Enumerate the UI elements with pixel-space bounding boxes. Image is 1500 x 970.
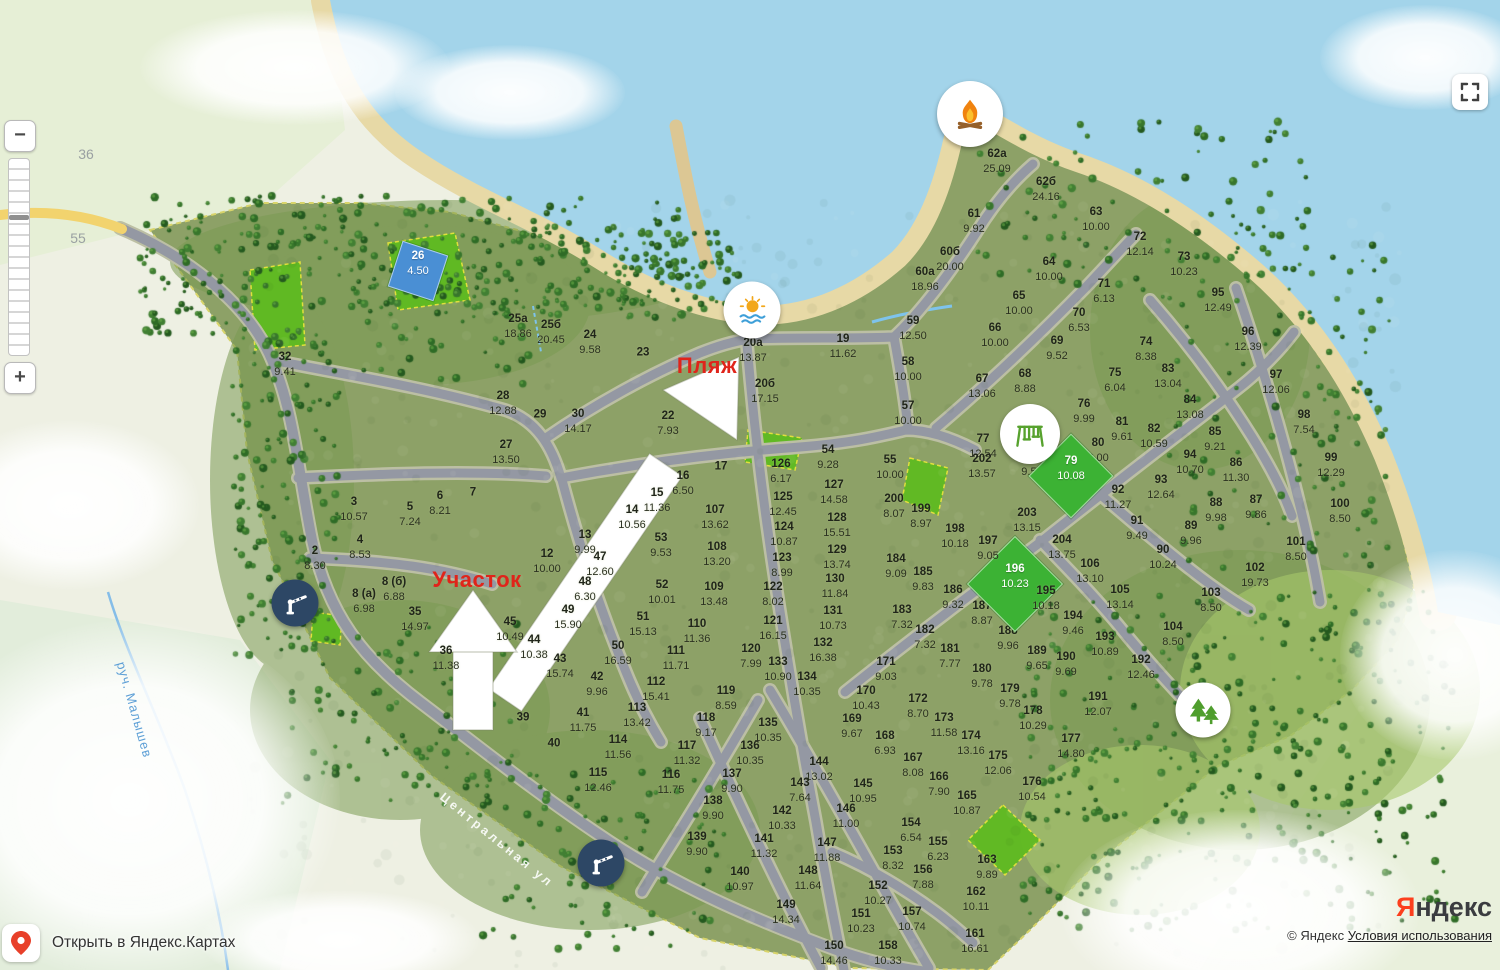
plot-label: 899.96 <box>1180 519 1201 548</box>
plot-label: 9612.39 <box>1234 325 1262 354</box>
plot-label: 1189.17 <box>695 711 716 740</box>
plot-label: 9912.29 <box>1317 451 1345 480</box>
plot-label: 2812.88 <box>489 389 517 418</box>
playground-marker[interactable] <box>1000 404 1060 464</box>
plot-label: 5115.13 <box>629 610 657 639</box>
plot-label: 3611.38 <box>433 644 460 673</box>
plot-label: 16116.61 <box>961 927 989 956</box>
open-in-yandex-maps-label[interactable]: Открыть в Яндекс.Картах <box>52 934 235 952</box>
plot-label: 11711.32 <box>674 739 701 768</box>
plot-label: 1379.90 <box>721 767 742 796</box>
plot-label: 10913.48 <box>700 580 728 609</box>
plot-label: 10513.14 <box>1106 583 1134 612</box>
plot-label: 6713.06 <box>968 372 996 401</box>
plot-label: 756.04 <box>1104 366 1125 395</box>
plot-label: 7310.23 <box>1170 250 1198 279</box>
plot-label: 12913.74 <box>823 543 851 572</box>
plot-label: 12410.87 <box>770 520 798 549</box>
plot-label: 5912.50 <box>899 314 927 343</box>
plot-label: 13410.35 <box>793 670 821 699</box>
plot-label: 619.92 <box>963 207 984 236</box>
campfire-marker[interactable] <box>937 81 1003 147</box>
plot-label: 1686.93 <box>874 729 895 758</box>
plot-label: 1538.32 <box>882 844 903 873</box>
plot-label: 13610.35 <box>736 739 764 768</box>
plot-label: 29 <box>534 407 547 422</box>
plot-label: 20а13.87 <box>739 336 767 365</box>
beach-icon <box>735 293 769 327</box>
copyright: © Яндекс <box>1287 928 1344 943</box>
plot-label: 4111.75 <box>570 706 597 735</box>
plot-label: 9211.27 <box>1105 483 1132 512</box>
plot-label: 919.49 <box>1126 514 1147 543</box>
plot-label: 1008.50 <box>1329 497 1350 526</box>
plot-label: 1667.90 <box>928 770 949 799</box>
plot-label: 8313.04 <box>1154 362 1182 391</box>
highlighted-plot[interactable] <box>967 536 1063 632</box>
plot-label: 1238.99 <box>771 551 792 580</box>
plot-label: 15110.23 <box>847 907 875 936</box>
plot-label: 1859.83 <box>912 565 933 594</box>
plot-label: 249.58 <box>579 328 600 357</box>
plot-label: 7 <box>470 485 476 500</box>
plot-label: 1048.50 <box>1162 620 1183 649</box>
plot-label: 429.96 <box>586 670 607 699</box>
plot-label: 5710.00 <box>894 399 922 428</box>
plot-label: 7712.54 <box>969 432 997 461</box>
plot-label: 15810.33 <box>874 939 902 968</box>
yandex-maps-pin-icon[interactable] <box>2 924 40 962</box>
plot-label: 10613.10 <box>1076 557 1104 586</box>
road-number: 55 <box>70 230 86 246</box>
plot-label: 68.21 <box>429 489 450 518</box>
plot-label: 20413.75 <box>1048 533 1076 562</box>
plot-label: 1210.00 <box>533 547 561 576</box>
plot-label: 17610.54 <box>1018 775 1046 804</box>
plot-label: 14711.88 <box>814 836 841 865</box>
plot-label: 9010.24 <box>1149 543 1177 572</box>
plot-label: 11411.56 <box>605 733 632 762</box>
plot-label: 14914.34 <box>772 898 800 927</box>
zoom-in-button[interactable]: + <box>4 362 36 394</box>
plot-label: 17 <box>715 459 728 474</box>
plot-label: 1699.67 <box>841 712 862 741</box>
map-canvas[interactable]: 62а25.0962б24.16619.926310.007212.1460б2… <box>0 0 1500 970</box>
plot-label: 14111.32 <box>751 832 778 861</box>
plot-label: 769.99 <box>1073 397 1094 426</box>
playground-icon <box>1012 416 1048 452</box>
plot-label: 10713.62 <box>701 503 729 532</box>
plot-label: 889.98 <box>1205 496 1226 525</box>
street-name-label: Центральная ул <box>437 790 556 890</box>
plot-label: 9410.70 <box>1176 448 1204 477</box>
plot-label: 15014.46 <box>820 939 848 968</box>
plot-label: 1849.09 <box>885 552 906 581</box>
plot-annotation: Участок <box>432 567 521 593</box>
plot-label: 2008.07 <box>883 492 904 521</box>
plot-label: 16510.87 <box>953 789 981 818</box>
plot-label: 60а18.96 <box>911 265 939 294</box>
plot-label: 1817.77 <box>939 642 960 671</box>
plot-label: 1567.88 <box>912 863 933 892</box>
plot-label: 19212.46 <box>1127 653 1155 682</box>
plot-label: 5016.59 <box>604 639 632 668</box>
barrier-icon <box>280 588 310 618</box>
barrier-marker[interactable] <box>578 840 625 887</box>
terms-link[interactable]: Условия использования <box>1348 928 1492 943</box>
plot-label: 13510.35 <box>754 716 782 745</box>
plot-label: 11111.71 <box>663 644 690 673</box>
plot-label: 6610.00 <box>981 321 1009 350</box>
plot-label: 879.86 <box>1245 493 1266 522</box>
plot-label: 310.57 <box>340 495 368 524</box>
plot-label: 5210.01 <box>648 578 676 607</box>
plot-label: 8 (б)6.88 <box>382 575 406 604</box>
plot-label: 25б20.45 <box>537 318 565 347</box>
plot-label: 166.50 <box>672 469 693 498</box>
plot-label: 17714.80 <box>1057 732 1085 761</box>
plot-label: 17512.06 <box>984 749 1012 778</box>
plot-label: 10813.20 <box>703 540 731 569</box>
plot-label: 12714.58 <box>820 478 848 507</box>
plot-label: 13216.38 <box>809 636 837 665</box>
plot-label: 5510.00 <box>876 453 904 482</box>
plot-label: 14413.02 <box>805 755 833 784</box>
plot-label: 1639.89 <box>976 853 997 882</box>
plot-label: 1799.78 <box>999 682 1020 711</box>
plot-label: 48.53 <box>349 533 370 562</box>
plot-label: 4915.90 <box>554 603 582 632</box>
plot-label: 20б17.15 <box>751 377 779 406</box>
plot-label: 25а18.86 <box>504 312 532 341</box>
plot-label: 14611.00 <box>833 802 860 831</box>
plot-label: 6310.00 <box>1082 205 1110 234</box>
plot-label: 13110.73 <box>819 604 847 633</box>
plot-label: 62б24.16 <box>1032 175 1060 204</box>
plot-label: 9312.64 <box>1147 473 1175 502</box>
beach-annotation: Пляж <box>677 353 737 379</box>
plot-label: 8210.59 <box>1140 422 1168 451</box>
plot-label: 3014.17 <box>564 407 592 436</box>
plot-label: 329.41 <box>274 350 295 379</box>
plot-label: 19310.89 <box>1091 630 1119 659</box>
plot-label: 1399.90 <box>686 830 707 859</box>
plot-label: 17010.43 <box>852 684 880 713</box>
plot-label: 28.30 <box>304 544 325 573</box>
plot-label: 1949.46 <box>1062 609 1083 638</box>
barrier-icon <box>586 848 616 878</box>
plot-label: 1719.03 <box>875 655 896 684</box>
plot-label: 6410.00 <box>1035 255 1063 284</box>
zoom-out-button[interactable]: − <box>4 120 36 152</box>
plot-label: 688.88 <box>1014 367 1035 396</box>
plot-label: 699.52 <box>1046 334 1067 363</box>
fullscreen-button[interactable] <box>1452 74 1488 110</box>
plot-label: 227.93 <box>657 409 678 438</box>
plot-label: 4712.60 <box>586 550 614 579</box>
plot-label: 12116.15 <box>759 614 787 643</box>
plot-label: 1869.32 <box>942 583 963 612</box>
plot-label: 14010.97 <box>726 865 754 894</box>
plot-label: 1911.62 <box>830 332 857 361</box>
stream-name-label: руч. Малышев <box>114 660 156 760</box>
plot-label: 1556.23 <box>927 835 948 864</box>
zoom-slider[interactable] <box>8 158 30 356</box>
plot-label: 1809.78 <box>971 662 992 691</box>
plot-label: 12512.45 <box>769 490 797 519</box>
plot-label: 57.24 <box>399 500 420 529</box>
zoom-control: − + <box>4 120 36 394</box>
plot-label: 15710.74 <box>898 905 926 934</box>
plot-label: 1827.32 <box>914 623 935 652</box>
zoom-slider-handle[interactable] <box>9 215 29 220</box>
plot-label: 8611.30 <box>1223 456 1250 485</box>
plot-label: 14811.64 <box>795 864 822 893</box>
plot-label: 62а25.09 <box>983 147 1011 176</box>
road-number: 36 <box>78 146 94 162</box>
plot-label: 3514.97 <box>401 605 429 634</box>
plot-label: 539.53 <box>650 531 671 560</box>
plot-label: 39 <box>517 710 530 725</box>
plot-label: 8 (а)6.98 <box>352 587 376 616</box>
plot-label: 1899.65 <box>1026 644 1047 673</box>
plot-label: 1207.99 <box>740 642 761 671</box>
plot-label: 139.99 <box>574 528 595 557</box>
plot-label: 15210.27 <box>864 879 892 908</box>
plot-label: 17311.58 <box>931 711 958 740</box>
plot-label: 1410.56 <box>618 503 646 532</box>
highlighted-plot[interactable] <box>388 241 448 301</box>
open-in-yandex-maps[interactable]: Открыть в Яндекс.Картах <box>2 924 235 962</box>
plot-label: 11611.75 <box>658 768 685 797</box>
plot-label: 716.13 <box>1093 277 1114 306</box>
plot-label: 4510.49 <box>496 615 524 644</box>
plot-label: 2713.50 <box>492 438 520 467</box>
plot-label: 60б20.00 <box>936 245 964 274</box>
plot-label: 11215.41 <box>642 675 670 704</box>
plot-label: 4410.38 <box>520 633 548 662</box>
plot-label: 1909.69 <box>1055 650 1076 679</box>
plot-label: 1998.97 <box>910 502 931 531</box>
yandex-logo[interactable]: Яндекс <box>1287 894 1492 921</box>
plot-label: 19810.18 <box>941 522 969 551</box>
plot-label: 9712.06 <box>1262 368 1290 397</box>
plot-label: 549.28 <box>817 443 838 472</box>
plot-label: 13011.84 <box>822 572 849 601</box>
plot-label: 1266.17 <box>770 457 791 486</box>
plot-label: 819.61 <box>1111 415 1132 444</box>
plot-label: 1437.64 <box>789 776 810 805</box>
plot-label: 1389.90 <box>702 794 723 823</box>
plot-label: 14510.95 <box>849 777 877 806</box>
plot-label: 1678.08 <box>902 751 923 780</box>
plot-label: 17413.16 <box>957 729 985 758</box>
plot-label: 6510.00 <box>1005 289 1033 318</box>
plot-label: 987.54 <box>1293 408 1314 437</box>
plot-label: 1228.02 <box>762 580 783 609</box>
plot-label: 4315.74 <box>546 652 574 681</box>
plot-label: 7212.14 <box>1126 230 1154 259</box>
plot-label: 11011.36 <box>684 617 711 646</box>
plot-label: 1728.70 <box>907 692 928 721</box>
plot-label: 486.30 <box>574 575 595 604</box>
plot-label: 1018.50 <box>1285 535 1306 564</box>
plot-label: 11512.46 <box>584 766 612 795</box>
plot-label: 9512.49 <box>1204 286 1232 315</box>
plot-label: 17810.29 <box>1019 704 1047 733</box>
plot-label: 20313.15 <box>1013 506 1041 535</box>
plot-label: 10219.73 <box>1241 561 1269 590</box>
plot-label: 14210.33 <box>768 804 796 833</box>
plot-label: 1546.54 <box>900 816 921 845</box>
plot-label: 40 <box>548 736 561 751</box>
plot-label: 859.21 <box>1204 425 1225 454</box>
fullscreen-icon <box>1459 81 1481 103</box>
plot-label: 11313.42 <box>623 701 651 730</box>
plot-label: 8413.08 <box>1176 393 1204 422</box>
plot-label: 12815.51 <box>823 511 851 540</box>
plot-label: 1038.50 <box>1200 586 1221 615</box>
plot-label: 16210.11 <box>963 885 990 914</box>
plot-label: 1837.32 <box>891 603 912 632</box>
park-marker[interactable] <box>1176 683 1231 738</box>
plot-label: 748.38 <box>1135 335 1156 364</box>
beach-marker[interactable] <box>724 282 781 339</box>
plot-label: 706.53 <box>1068 306 1089 335</box>
plot-label: 1511.36 <box>644 486 671 515</box>
plot-label: 5810.00 <box>894 355 922 384</box>
plot-label: 13310.90 <box>764 655 792 684</box>
park-trees-icon <box>1186 693 1220 727</box>
plot-label: 19112.07 <box>1084 690 1112 719</box>
barrier-marker[interactable] <box>272 580 319 627</box>
plot-label: 23 <box>637 345 650 360</box>
plot-label: 1198.59 <box>715 684 736 713</box>
campfire-icon <box>951 95 989 133</box>
plot-label: 20213.57 <box>968 452 996 481</box>
